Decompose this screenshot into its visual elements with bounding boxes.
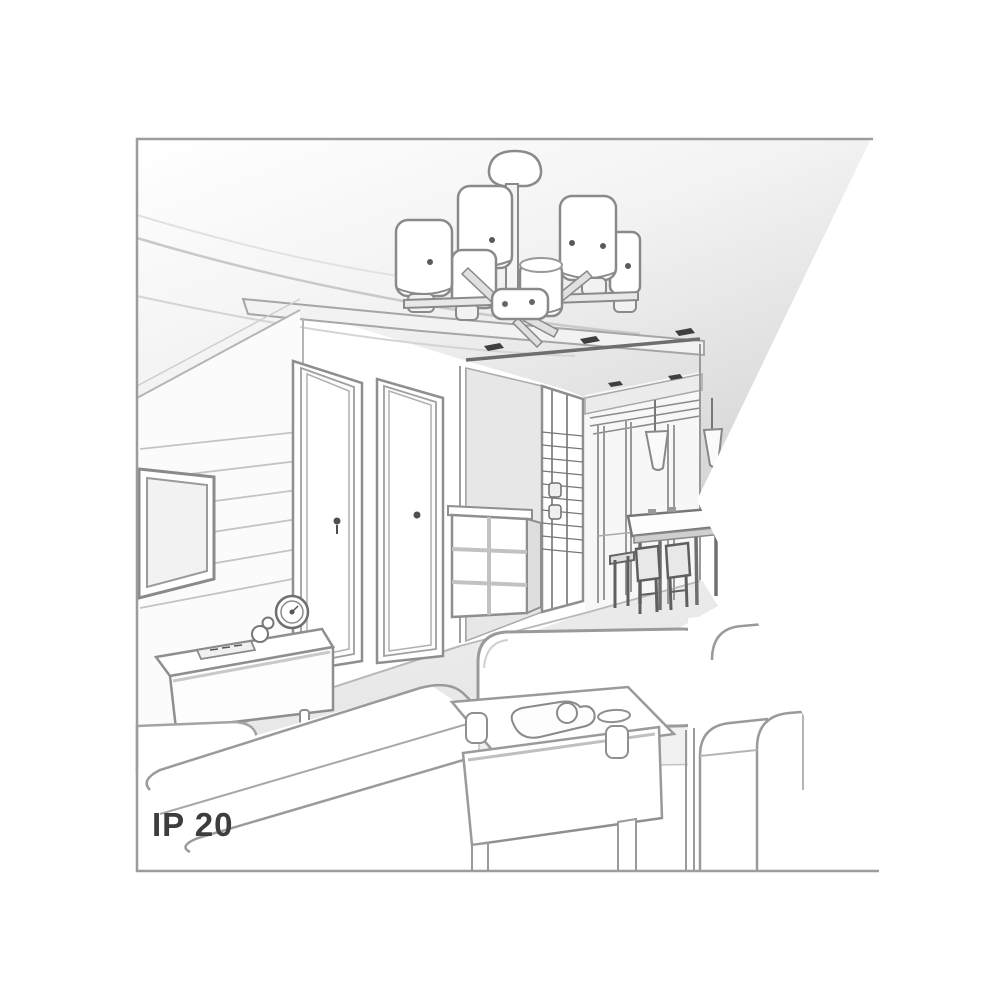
door-handle <box>414 512 421 519</box>
chest-of-drawers <box>448 506 541 617</box>
interior-sketch: IP 20 <box>0 0 1000 1000</box>
chandelier-canopy <box>489 151 541 186</box>
door-handle <box>334 518 341 525</box>
illustration-canvas: IP 20 <box>0 0 1000 1000</box>
cup <box>606 726 628 758</box>
door-left <box>293 361 362 672</box>
wall-tv <box>139 469 214 598</box>
chandelier-hub <box>492 289 548 319</box>
wardrobe <box>542 386 583 612</box>
cup <box>466 713 487 743</box>
ip-rating-label: IP 20 <box>152 806 233 843</box>
table-clock <box>276 596 308 628</box>
door-right <box>377 379 443 663</box>
